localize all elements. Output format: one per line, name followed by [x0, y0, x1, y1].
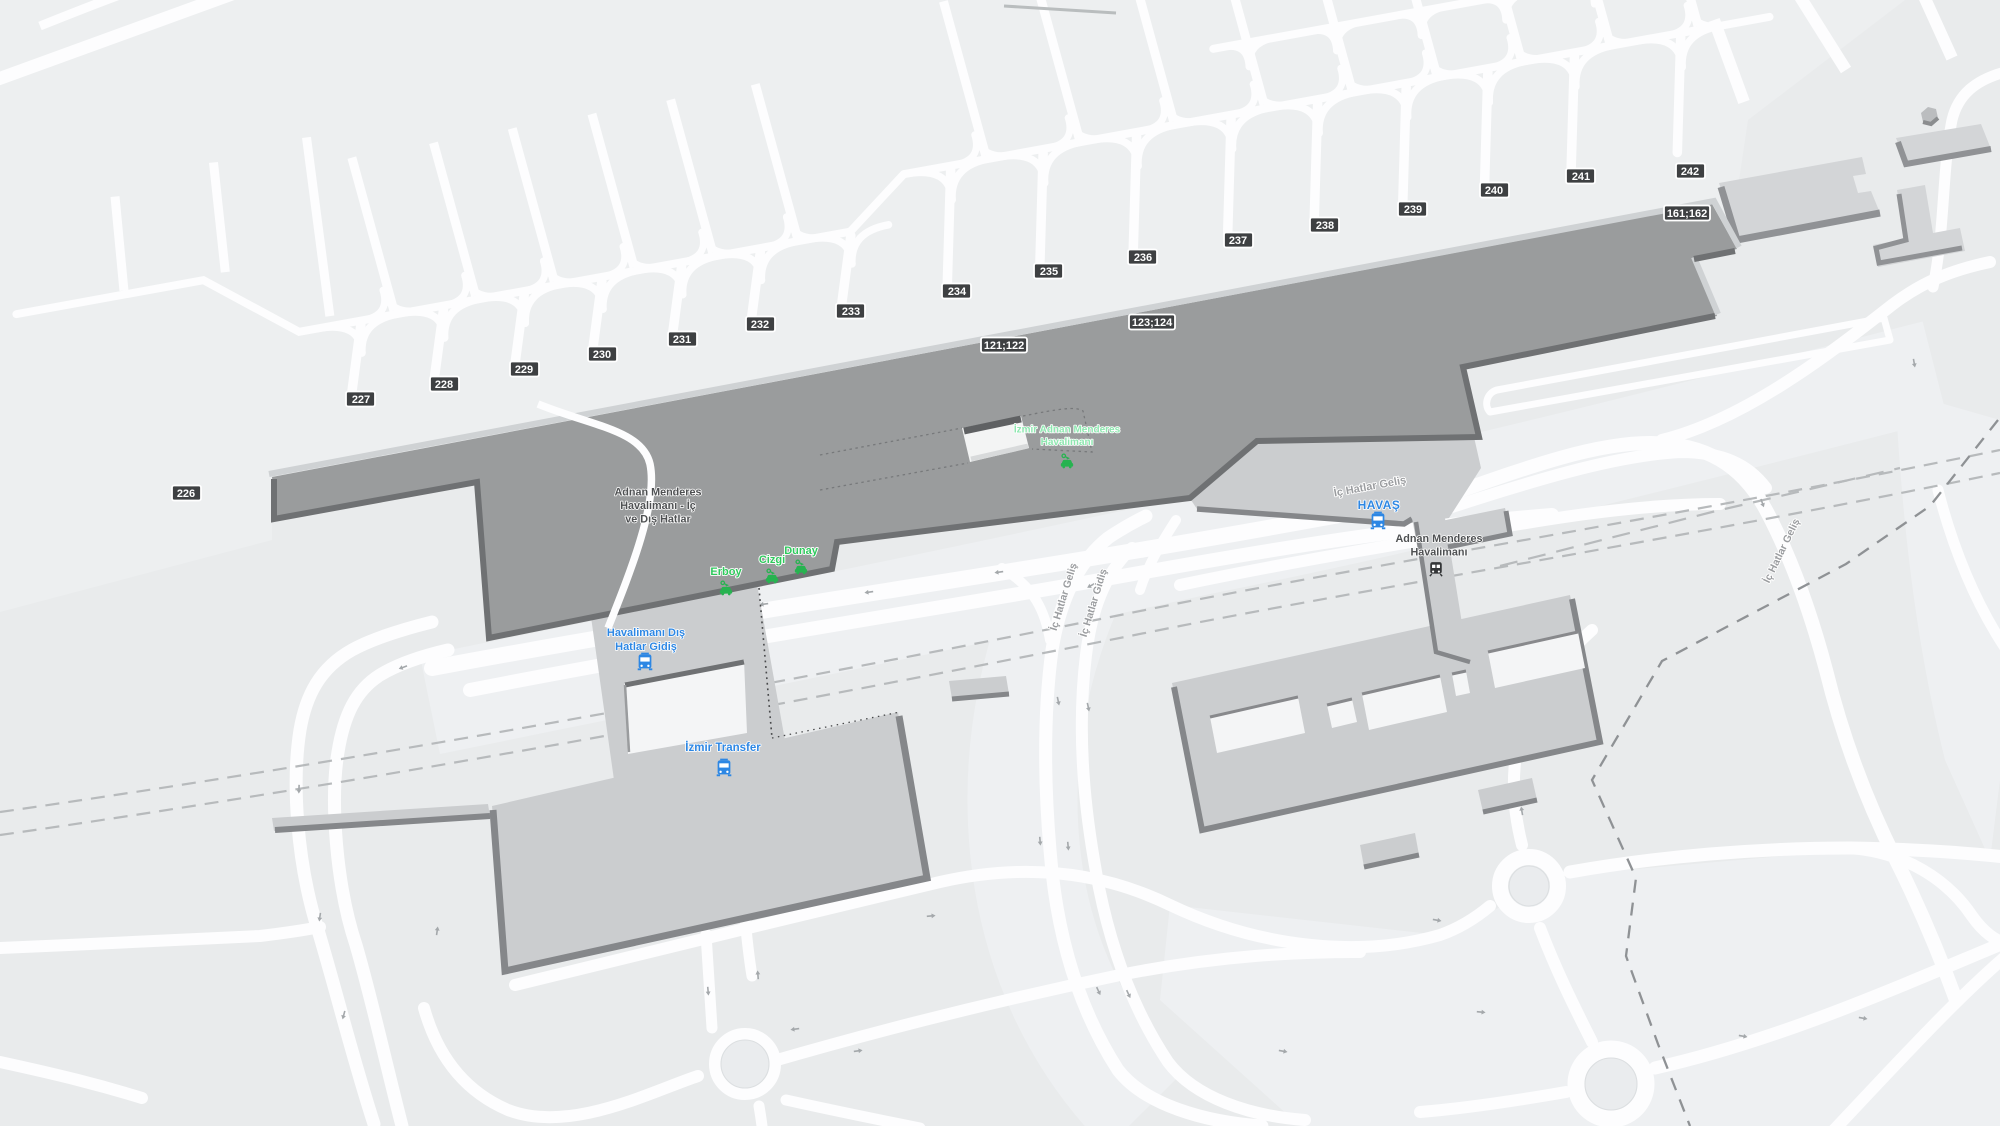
svg-text:Erboy: Erboy: [710, 566, 742, 578]
svg-text:ve Dış Hatlar: ve Dış Hatlar: [625, 513, 691, 525]
svg-text:123;124: 123;124: [1132, 317, 1173, 329]
svg-text:Havalimanı: Havalimanı: [1041, 437, 1094, 448]
svg-text:229: 229: [515, 364, 533, 376]
svg-text:İzmir Transfer: İzmir Transfer: [685, 741, 761, 754]
svg-text:Havalimanı: Havalimanı: [1410, 547, 1467, 559]
svg-text:239: 239: [1404, 204, 1422, 216]
svg-text:235: 235: [1040, 266, 1058, 278]
svg-text:Adnan Menderes: Adnan Menderes: [1396, 533, 1483, 545]
svg-text:242: 242: [1681, 166, 1699, 178]
svg-text:Havalimanı Dış: Havalimanı Dış: [607, 627, 685, 639]
svg-text:226: 226: [177, 488, 195, 500]
svg-text:233: 233: [842, 306, 860, 318]
svg-text:228: 228: [435, 379, 453, 391]
svg-text:Dunay: Dunay: [784, 545, 819, 557]
svg-text:230: 230: [593, 349, 611, 361]
svg-text:234: 234: [948, 286, 967, 298]
svg-text:237: 237: [1229, 235, 1247, 247]
svg-text:238: 238: [1316, 220, 1334, 232]
svg-text:227: 227: [352, 394, 370, 406]
svg-text:Adnan Menderes: Adnan Menderes: [615, 486, 702, 498]
svg-text:121;122: 121;122: [984, 340, 1024, 352]
svg-text:240: 240: [1485, 185, 1503, 197]
svg-text:232: 232: [751, 319, 769, 331]
svg-text:İzmir Adnan Menderes: İzmir Adnan Menderes: [1014, 422, 1121, 435]
svg-text:HAVAŞ: HAVAŞ: [1358, 498, 1401, 512]
svg-text:161;162: 161;162: [1667, 208, 1707, 220]
svg-text:Havalimanı - İç: Havalimanı - İç: [620, 499, 696, 512]
svg-text:Hatlar Gidiş: Hatlar Gidiş: [615, 641, 677, 653]
svg-text:Cizgi: Cizgi: [759, 554, 785, 566]
svg-text:236: 236: [1134, 252, 1152, 264]
svg-text:231: 231: [673, 334, 691, 346]
svg-text:241: 241: [1572, 171, 1590, 183]
